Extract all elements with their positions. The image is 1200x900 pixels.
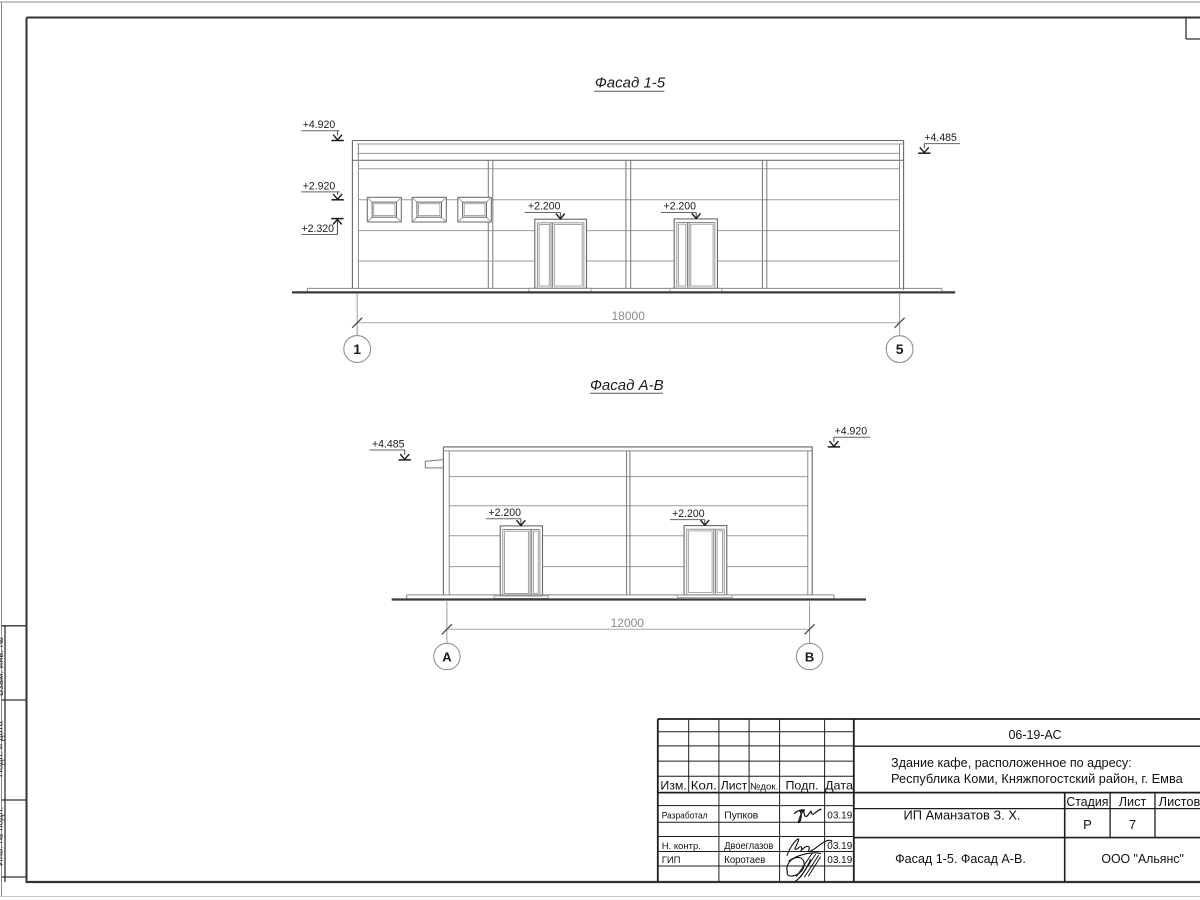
- svg-text:1: 1: [353, 341, 361, 357]
- svg-text:Здание кафе, расположенное по: Здание кафе, расположенное по адресу:: [891, 756, 1132, 770]
- svg-text:+2.320: +2.320: [302, 223, 335, 235]
- svg-text:В: В: [805, 650, 814, 665]
- svg-text:ООО "Альянс": ООО "Альянс": [1101, 851, 1184, 866]
- svg-text:Подп.: Подп.: [786, 779, 819, 793]
- svg-text:Лист: Лист: [1119, 795, 1147, 809]
- svg-text:+2.200: +2.200: [672, 508, 705, 520]
- svg-text:+2.200: +2.200: [664, 201, 697, 213]
- svg-text:Коротаев: Коротаев: [724, 854, 765, 866]
- svg-text:+4.485: +4.485: [372, 438, 405, 450]
- svg-text:7: 7: [1129, 817, 1136, 832]
- svg-text:12000: 12000: [611, 616, 645, 630]
- svg-text:ГИП: ГИП: [662, 855, 681, 866]
- svg-text:+4.485: +4.485: [924, 132, 957, 144]
- svg-text:Фасад 1-5. Фасад А-В.: Фасад 1-5. Фасад А-В.: [895, 852, 1026, 866]
- svg-text:03.19: 03.19: [827, 841, 852, 852]
- svg-text:Р: Р: [1083, 817, 1092, 832]
- svg-text:+2.920: +2.920: [303, 180, 336, 192]
- svg-text:Дата: Дата: [825, 779, 853, 793]
- svg-text:+4.920: +4.920: [303, 119, 336, 131]
- svg-text:Листов: Листов: [1159, 795, 1200, 809]
- svg-text:Инв. № подл.: Инв. № подл.: [0, 807, 6, 866]
- svg-text:Двоеглазов: Двоеглазов: [724, 840, 773, 852]
- svg-text:Разработал: Разработал: [662, 810, 708, 821]
- svg-text:Изм.: Изм.: [660, 779, 687, 793]
- svg-text:Лист: Лист: [721, 779, 748, 793]
- svg-text:Подп. и дата: Подп. и дата: [0, 720, 6, 777]
- svg-text:06-19-АС: 06-19-АС: [1009, 727, 1062, 742]
- svg-text:5: 5: [896, 341, 904, 357]
- svg-text:№док.: №док.: [750, 782, 778, 793]
- svg-text:Фасад 1-5: Фасад 1-5: [595, 74, 666, 91]
- svg-text:Республика Коми, Княжпогостски: Республика Коми, Княжпогостский район, г…: [891, 772, 1183, 786]
- svg-text:ИП Аманзатов З. Х.: ИП Аманзатов З. Х.: [904, 809, 1021, 823]
- svg-text:+2.200: +2.200: [528, 201, 561, 213]
- svg-text:Пупков: Пупков: [724, 809, 758, 821]
- svg-text:А: А: [442, 650, 452, 665]
- svg-text:Стадия: Стадия: [1066, 795, 1108, 809]
- svg-text:+4.920: +4.920: [835, 426, 868, 438]
- svg-text:Кол.: Кол.: [691, 779, 717, 793]
- svg-text:03.19: 03.19: [827, 810, 852, 821]
- svg-text:+2.200: +2.200: [489, 507, 522, 519]
- svg-text:Взам. инв. №: Взам. инв. №: [0, 637, 6, 696]
- svg-text:Н. контр.: Н. контр.: [662, 841, 701, 852]
- svg-text:18000: 18000: [612, 309, 646, 323]
- svg-text:Фасад А-В: Фасад А-В: [590, 377, 664, 394]
- svg-text:03.19: 03.19: [827, 855, 852, 866]
